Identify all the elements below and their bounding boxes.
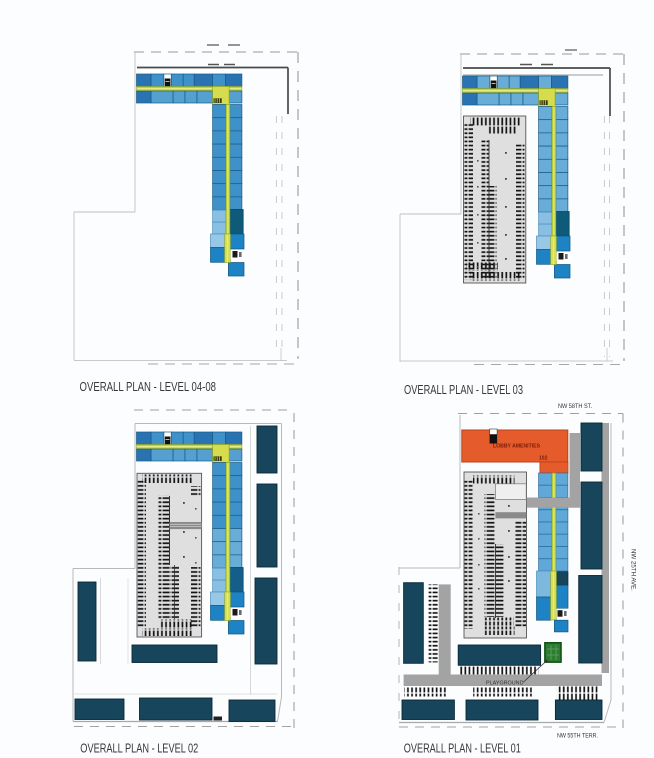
svg-text:OVERALL PLAN - LEVEL 04-08: OVERALL PLAN - LEVEL 04-08 (80, 380, 217, 394)
svg-text:OVERALL PLAN - LEVEL 02: OVERALL PLAN - LEVEL 02 (80, 742, 198, 756)
svg-text:NW 55TH TERR.: NW 55TH TERR. (557, 733, 598, 740)
svg-text:LOBBY AMENITIES: LOBBY AMENITIES (493, 444, 540, 450)
svg-text:OVERALL PLAN - LEVEL 01: OVERALL PLAN - LEVEL 01 (404, 742, 521, 756)
svg-text:102: 102 (539, 456, 547, 462)
svg-text:NW 58TH ST.: NW 58TH ST. (558, 403, 592, 410)
svg-text:PLAYGROUND: PLAYGROUND (486, 681, 524, 687)
svg-text:NW 25TH AVE.: NW 25TH AVE. (630, 549, 637, 591)
svg-text:OVERALL PLAN - LEVEL 03: OVERALL PLAN - LEVEL 03 (404, 383, 523, 397)
